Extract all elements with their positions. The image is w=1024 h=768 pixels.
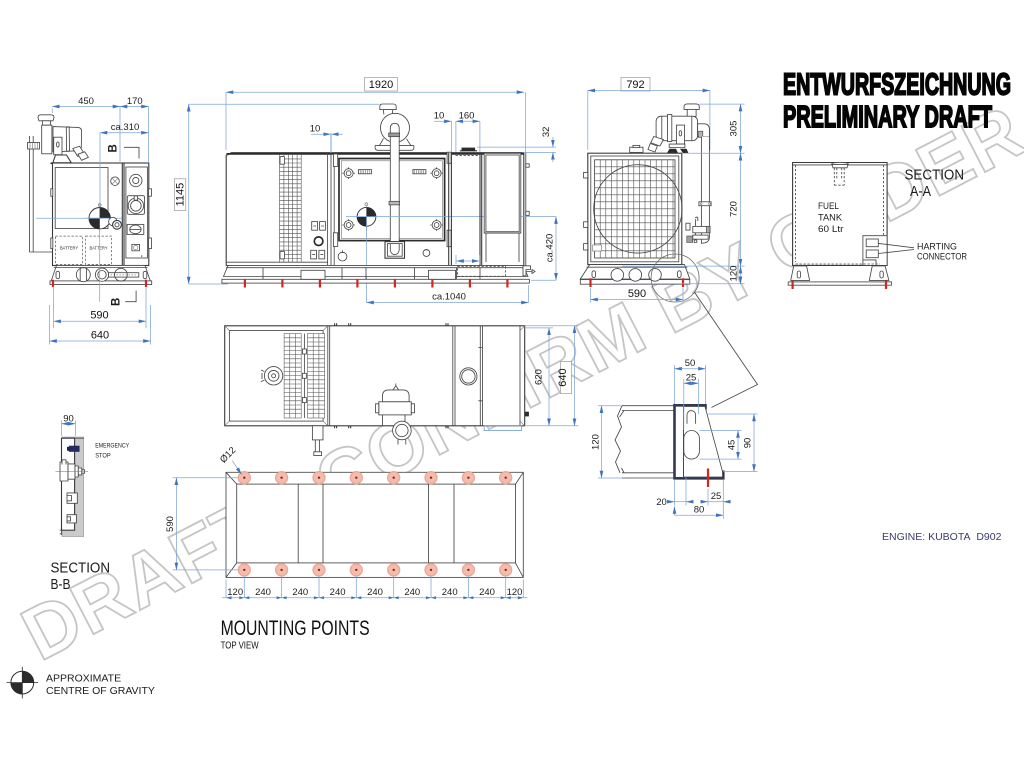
svg-text:720: 720 bbox=[729, 201, 740, 217]
svg-text:240: 240 bbox=[367, 587, 383, 598]
svg-text:PRELIMINARY DRAFT: PRELIMINARY DRAFT bbox=[783, 99, 992, 134]
svg-text:640: 640 bbox=[557, 368, 569, 386]
svg-text:590: 590 bbox=[628, 288, 646, 300]
svg-text:305: 305 bbox=[729, 121, 740, 137]
svg-text:450: 450 bbox=[78, 96, 94, 107]
svg-text:ca.310: ca.310 bbox=[111, 122, 140, 133]
svg-text:A-A: A-A bbox=[910, 184, 931, 200]
svg-text:45: 45 bbox=[727, 440, 738, 451]
svg-text:ENGINE: KUBOTA D902: ENGINE: KUBOTA D902 bbox=[882, 531, 1002, 543]
svg-text:ca.1040: ca.1040 bbox=[432, 292, 466, 303]
svg-text:10: 10 bbox=[310, 124, 321, 135]
svg-text:TANK: TANK bbox=[818, 213, 843, 224]
svg-text:STOP: STOP bbox=[95, 453, 111, 460]
svg-text:SECTION: SECTION bbox=[905, 168, 965, 184]
svg-text:FUEL: FUEL bbox=[818, 201, 839, 212]
svg-text:590: 590 bbox=[90, 310, 108, 322]
svg-text:20: 20 bbox=[656, 497, 667, 508]
svg-text:CONNECTOR: CONNECTOR bbox=[917, 252, 967, 263]
svg-text:120: 120 bbox=[227, 587, 243, 598]
svg-text:25: 25 bbox=[686, 373, 697, 384]
svg-text:TOP VIEW: TOP VIEW bbox=[221, 640, 259, 652]
svg-text:10: 10 bbox=[434, 111, 445, 122]
svg-text:BATTERY: BATTERY bbox=[90, 246, 109, 252]
svg-text:ENTWURFSZEICHNUNG: ENTWURFSZEICHNUNG bbox=[783, 67, 1011, 102]
svg-text:90: 90 bbox=[743, 438, 754, 449]
svg-text:240: 240 bbox=[255, 587, 271, 598]
svg-text:SECTION: SECTION bbox=[51, 561, 111, 577]
svg-text:792: 792 bbox=[626, 79, 644, 91]
svg-text:120: 120 bbox=[729, 266, 740, 282]
svg-text:CENTRE OF GRAVITY: CENTRE OF GRAVITY bbox=[46, 685, 155, 697]
svg-text:1920: 1920 bbox=[369, 79, 393, 91]
svg-text:1145: 1145 bbox=[174, 183, 186, 207]
svg-text:MOUNTING POINTS: MOUNTING POINTS bbox=[221, 616, 370, 640]
svg-text:620: 620 bbox=[534, 369, 545, 385]
svg-text:APPROXIMATE: APPROXIMATE bbox=[46, 673, 121, 685]
svg-text:120: 120 bbox=[591, 434, 602, 450]
svg-text:EMERGENCY: EMERGENCY bbox=[95, 443, 129, 450]
svg-text:170: 170 bbox=[127, 96, 143, 107]
svg-text:120: 120 bbox=[507, 587, 523, 598]
svg-text:240: 240 bbox=[442, 587, 458, 598]
svg-text:240: 240 bbox=[404, 587, 420, 598]
svg-text:60 Ltr: 60 Ltr bbox=[818, 224, 844, 235]
svg-text:32: 32 bbox=[541, 127, 552, 138]
svg-text:590: 590 bbox=[165, 516, 176, 532]
svg-text:B: B bbox=[111, 298, 123, 306]
svg-text:B-B: B-B bbox=[51, 577, 71, 593]
svg-text:240: 240 bbox=[330, 587, 346, 598]
svg-text:640: 640 bbox=[91, 330, 109, 342]
svg-text:240: 240 bbox=[292, 587, 308, 598]
svg-text:25: 25 bbox=[711, 491, 722, 502]
svg-text:160: 160 bbox=[459, 111, 475, 122]
svg-text:50: 50 bbox=[685, 358, 696, 369]
svg-text:80: 80 bbox=[694, 505, 705, 516]
svg-text:BATTERY: BATTERY bbox=[60, 246, 79, 252]
svg-text:90: 90 bbox=[63, 414, 74, 425]
svg-text:240: 240 bbox=[479, 587, 495, 598]
svg-text:ca.420: ca.420 bbox=[545, 234, 556, 263]
svg-text:B: B bbox=[108, 144, 120, 152]
